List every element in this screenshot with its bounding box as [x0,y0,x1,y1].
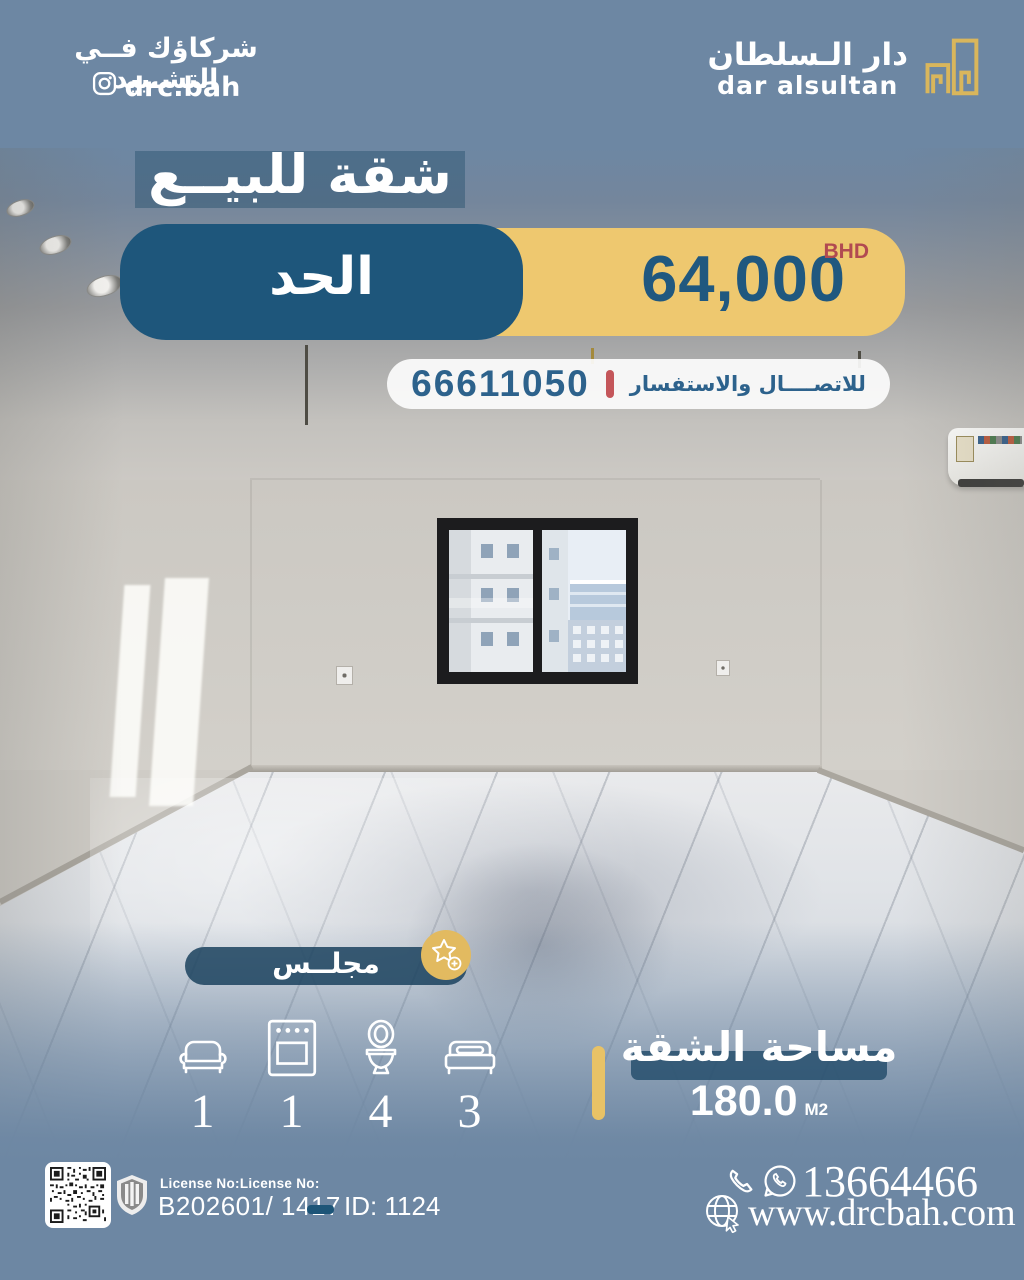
listing-title: شقة للبيــع [148,137,452,213]
area-value-row: 180.0 M2 [616,1080,902,1123]
feature-count: 3 [458,1088,482,1136]
website-url[interactable]: www.drcbah.com [748,1194,1016,1232]
instagram-handle-text: drc.bah [125,72,241,103]
feature-bathrooms: 4 [336,1016,425,1136]
feature-count: 1 [280,1088,304,1136]
sofa-icon [176,1016,230,1078]
bed-icon [442,1016,498,1078]
instagram-icon [92,71,117,103]
features-row: 1 1 4 [158,1016,514,1136]
brand-block: دار الـسلطان dar alsultan [707,33,982,103]
listing-id: ID: 1124 [344,1191,440,1222]
room-tag-label: مجلــس [272,947,380,986]
star-badge-icon [421,930,471,980]
toilet-icon [360,1016,402,1078]
instagram-handle[interactable]: drc.bah [30,71,302,103]
real-estate-flyer: شركاؤك فــي التشـييد drc.bah دار الـسلطا… [0,0,1024,1280]
contact-phone-number: 66611050 [411,363,590,405]
listing-title-band: شقة للبيــع [135,151,465,208]
contact-pill[interactable]: 66611050 للاتصــــال والاستفسار [387,359,890,409]
feature-count: 1 [191,1088,215,1136]
license-shield-icon [116,1174,148,1220]
globe-cursor-icon [702,1191,744,1237]
brand-name-arabic: دار الـسلطان [707,38,908,74]
divider-dash [307,1205,334,1214]
oven-icon [266,1016,318,1078]
brand-logo-icon [920,33,982,103]
contact-label: للاتصــــال والاستفسار [630,372,866,396]
feature-kitchens: 1 [247,1016,336,1136]
license-label: License No:License No: [160,1176,320,1191]
price-currency: BHD [824,240,870,264]
feature-living-rooms: 1 [158,1016,247,1136]
brand-name-english: dar alsultan [717,73,898,98]
area-label: مساحة الشقة [616,1018,902,1076]
location-name: الحد [269,247,374,317]
feature-count: 4 [369,1088,393,1136]
separator-bar [606,370,614,398]
price-value: 64,000 [641,246,846,311]
area-unit: M2 [804,1100,828,1120]
brand-names: دار الـسلطان dar alsultan [707,38,908,99]
qr-code[interactable] [45,1162,111,1228]
area-accent-bar [592,1046,605,1120]
area-value: 180.0 [690,1080,798,1123]
feature-bedrooms: 3 [425,1016,514,1136]
location-pill: الحد [120,224,523,340]
